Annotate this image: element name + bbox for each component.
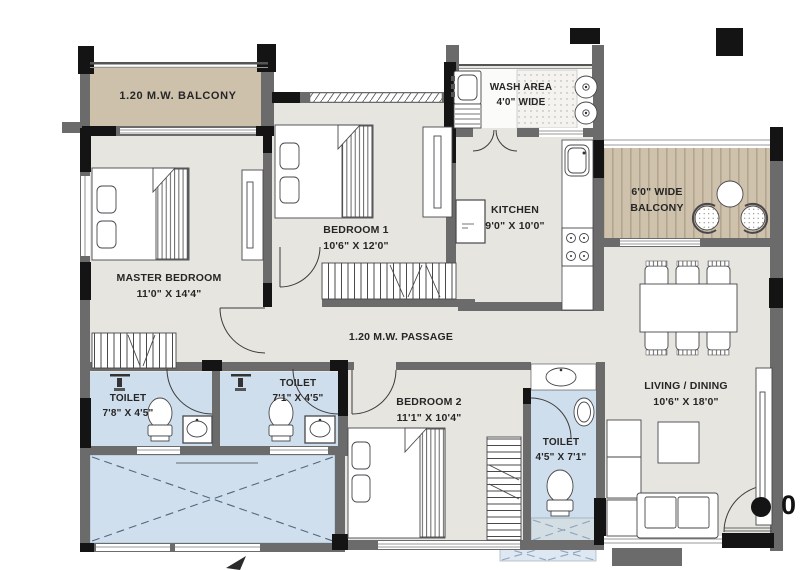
floor-plan-page: 1.20 M.W. BALCONY MASTER BEDROOM11'0" X … (0, 0, 800, 570)
coffee-table (658, 422, 699, 463)
living-cabinet (607, 420, 641, 536)
bedroom-1-wardrobe (423, 127, 452, 217)
room-label-balcony-right: 6'0" WIDEBALCONY (608, 185, 706, 217)
room-label-master-bedroom: MASTER BEDROOM11'0" X 14'4" (88, 271, 250, 303)
room-label-balcony-top: 1.20 M.W. BALCONY (93, 88, 263, 105)
room-label-bedroom-2: BEDROOM 211'1" X 10'4" (350, 395, 508, 427)
room-label-wash-area: WASH AREA4'0" WIDE (462, 80, 580, 110)
entrance-column (751, 497, 771, 517)
kitchen-sink (565, 145, 589, 176)
master-dresser (242, 170, 263, 260)
room-label-toilet-1: TOILET7'8" X 4'5" (78, 391, 178, 421)
room-label-toilet-3: TOILET4'5" X 7'1" (511, 435, 611, 465)
open-cutout-area (90, 455, 335, 543)
sofa (637, 493, 718, 538)
room-label-living-dining: LIVING / DINING10'6" X 18'0" (606, 379, 766, 411)
master-bed (92, 168, 189, 260)
room-label-toilet-2: TOILET7'1" X 4'5" (248, 376, 348, 406)
room-label-passage: 1.20 M.W. PASSAGE (320, 330, 482, 346)
bedroom-1-bed (275, 125, 373, 218)
dining-set (640, 261, 737, 355)
bedroom-2-bed (348, 428, 445, 538)
master-wardrobe (92, 333, 176, 368)
room-label-kitchen: KITCHEN9'0" X 10'0" (455, 203, 575, 235)
unit-number-partial: 0 (781, 490, 796, 521)
dining-table (640, 284, 737, 332)
room-label-bedroom-1: BEDROOM 110'6" X 12'0" (276, 223, 436, 255)
passage-wardrobe (322, 263, 456, 299)
north-arrow-icon (226, 556, 246, 570)
